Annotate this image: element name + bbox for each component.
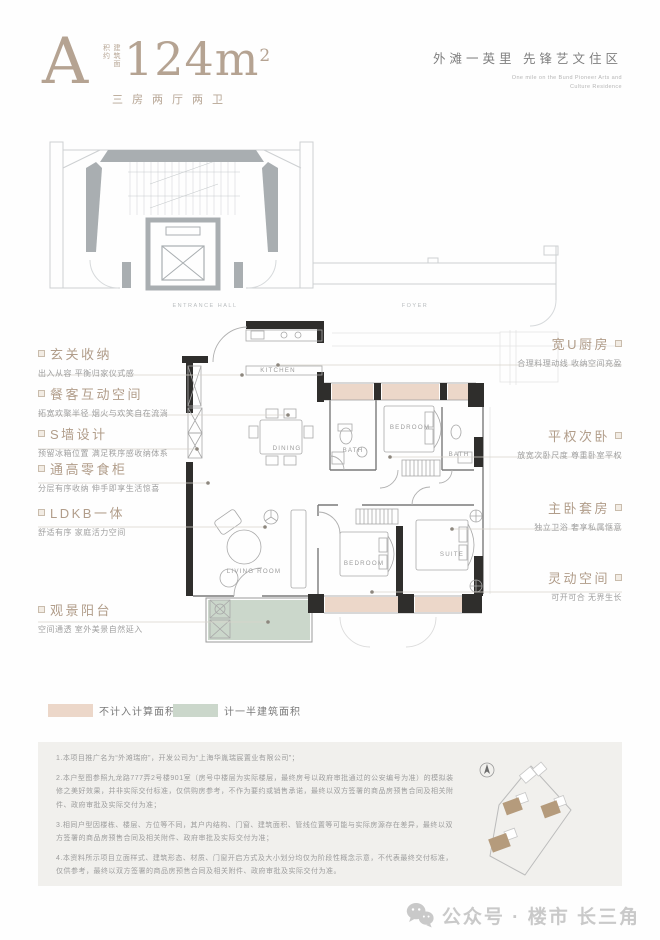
compass-icon bbox=[480, 763, 494, 777]
tagline-en-2: Culture Residence bbox=[433, 83, 622, 92]
room-label-suite: SUITE bbox=[440, 551, 464, 558]
area-value: 124m bbox=[124, 32, 259, 86]
area-prefix: 建筑面积约 bbox=[100, 44, 121, 74]
disclaimer-line-2: 2.本户型图参照九龙路777弄2号楼901室（房号中楼层为实际楼层，最终房号以政… bbox=[56, 772, 454, 813]
callout-equal-bedroom: 平权次卧 放宽次卧尺度 尊重卧室平权 bbox=[447, 426, 622, 461]
room-label-living: LIVING ROOM bbox=[227, 568, 281, 575]
legend-swatch-green bbox=[173, 704, 218, 717]
callout-snack-cabinet: 通高零食柜 分层有序收纳 伸手即享生活惊喜 bbox=[38, 459, 213, 494]
callout-bullet-icon bbox=[615, 432, 622, 439]
floorplan-page: { "header": { "plan_letter": "A", "area_… bbox=[0, 0, 660, 940]
callout-bullet-icon bbox=[38, 465, 45, 472]
callout-bullet-icon bbox=[38, 509, 45, 516]
callout-bullet-icon bbox=[38, 606, 45, 613]
area-block: 建筑面积约 124m2 bbox=[100, 36, 270, 82]
callout-bullet-icon bbox=[615, 340, 622, 347]
callout-balcony: 观景阳台 空间通透 室外美景自然延入 bbox=[38, 600, 213, 635]
disclaimer-line-1: 1.本项目推广名为“外滩瑞府”，开发公司为“上海华胤瑞宸置业有限公司”； bbox=[56, 752, 454, 766]
site-plan bbox=[455, 748, 630, 880]
room-label-bedroom1: BEDROOM bbox=[390, 424, 430, 431]
area-superscript: 2 bbox=[259, 46, 270, 66]
callout-u-kitchen: 宽U厨房 合理料理动线 收纳空间充盈 bbox=[447, 334, 622, 369]
tagline-cn: 外滩一英里 先锋艺文住区 bbox=[433, 48, 622, 67]
wechat-icon bbox=[406, 901, 434, 929]
callout-s-wall: S墙设计 预留冰箱位置 满足秩序感收纳体系 bbox=[38, 424, 213, 459]
legend-half-area: 计一半建筑面积 bbox=[173, 703, 301, 718]
disclaimer-line-4: 4.本资料所示项目立面样式、建筑形态、材质、门窗开启方式及大小划分均仅为阶段性概… bbox=[56, 852, 454, 879]
project-tagline: 外滩一英里 先锋艺文住区 One mile on the Bund Pionee… bbox=[433, 48, 622, 93]
room-label-bedroom2: BEDROOM bbox=[344, 560, 384, 567]
room-label-kitchen: KITCHEN bbox=[260, 367, 296, 374]
callout-dining-living: 餐客互动空间 拓宽欢聚半径 烟火与欢笑自在流淌 bbox=[38, 384, 213, 419]
callout-flex-space: 灵动空间 可开可合 无界生长 bbox=[447, 568, 622, 603]
legend-swatch-pink bbox=[48, 704, 93, 717]
plan-type-letter: A bbox=[42, 30, 88, 94]
disclaimer-line-3: 3.相同户型因楼栋、楼层、方位等不同，其户内结构、门窗、建筑面积、管线位置等可能… bbox=[56, 819, 454, 846]
foyer-label: FOYER bbox=[402, 303, 428, 309]
entrance-hall-label: ENTRANCE HALL bbox=[172, 303, 237, 309]
callout-ldkb: LDKB一体 舒适有序 家庭活力空间 bbox=[38, 503, 213, 538]
callout-master-suite: 主卧套房 独立卫浴 奢享私属惬意 bbox=[447, 498, 622, 533]
room-layout-text: 三房两厅两卫 bbox=[112, 91, 232, 107]
watermark-text: 公众号 · 楼市 长三角 bbox=[442, 902, 640, 929]
tagline-en-1: One mile on the Bund Pioneer Arts and bbox=[433, 74, 622, 83]
callout-entry-storage: 玄关收纳 出入从容 平衡归家仪式感 bbox=[38, 344, 213, 379]
room-label-bath1: BATH bbox=[343, 447, 364, 454]
legend-not-counted: 不计入计算面积 bbox=[48, 703, 176, 718]
callout-bullet-icon bbox=[615, 574, 622, 581]
callout-bullet-icon bbox=[38, 430, 45, 437]
callout-bullet-icon bbox=[38, 350, 45, 357]
callout-bullet-icon bbox=[615, 504, 622, 511]
callout-bullet-icon bbox=[38, 390, 45, 397]
room-label-dining: DINING bbox=[273, 445, 302, 452]
disclaimer-text: 1.本项目推广名为“外滩瑞府”，开发公司为“上海华胤瑞宸置业有限公司”； 2.本… bbox=[56, 752, 454, 885]
watermark: 公众号 · 楼市 长三角 bbox=[406, 901, 640, 929]
